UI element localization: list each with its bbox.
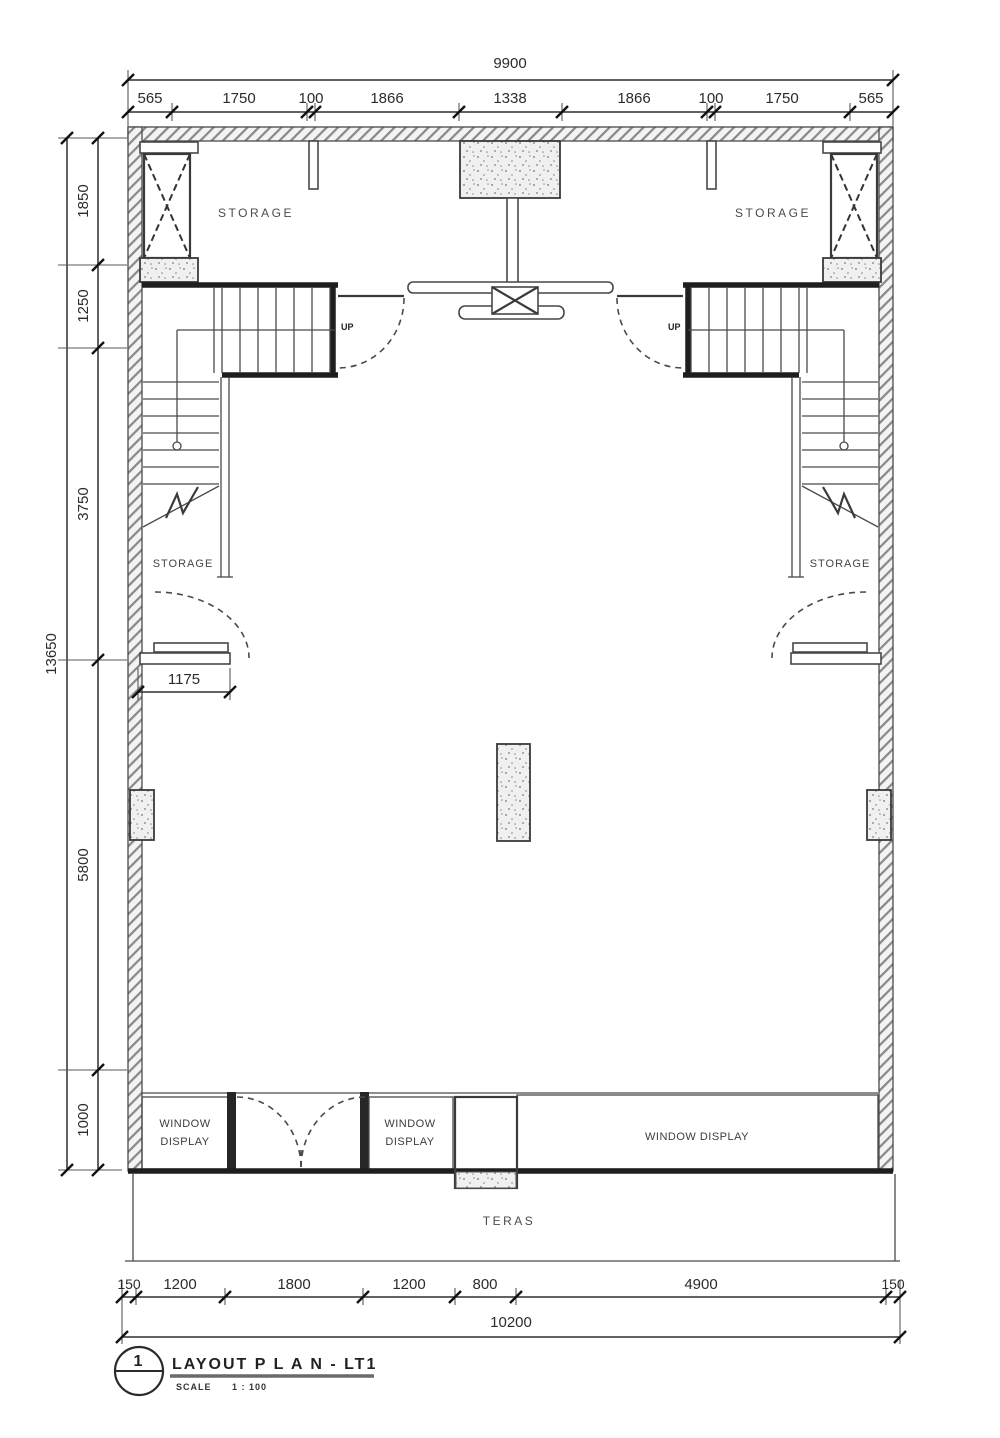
dim-top-seg-2: 100 (298, 90, 323, 107)
window-display-1-line2: DISPLAY (160, 1136, 209, 1148)
break-symbol (166, 487, 198, 518)
teras-label: TERAS (483, 1214, 536, 1228)
storage-label-mid-right: STORAGE (810, 558, 871, 570)
dim-top-seg-7: 1750 (765, 90, 798, 107)
entry-door-swing-left (237, 1097, 301, 1168)
center-column (497, 744, 530, 841)
dim-top-seg-0: 565 (137, 90, 162, 107)
dim-bottom-seg-5: 4900 (684, 1276, 717, 1293)
right-wall (879, 127, 893, 1171)
mid-columns (130, 744, 891, 841)
dim-left-seg-3: 5800 (75, 848, 92, 881)
understair-doors (140, 592, 881, 664)
wall-pier-right (867, 790, 891, 840)
dim-top-seg-4: 1338 (493, 90, 526, 107)
door-swing-right (617, 298, 683, 368)
scale-label: SCALE (176, 1382, 212, 1392)
dim-interior-width: 1175 (168, 671, 200, 688)
wall-pier-left (130, 790, 154, 840)
counter-right (791, 653, 881, 664)
dimension-interior: 1175 (132, 668, 236, 700)
center-wall-stem (507, 198, 518, 283)
dim-top-seg-8: 565 (858, 90, 883, 107)
window-display-2-line1: WINDOW (384, 1118, 435, 1130)
window-display-1-line1: WINDOW (159, 1118, 210, 1130)
break-symbol (823, 487, 855, 518)
dim-bottom-seg-2: 1800 (277, 1276, 310, 1293)
dim-left-seg-0: 1850 (75, 184, 92, 217)
shaft-cap (823, 142, 881, 153)
storage-label-mid-left: STORAGE (153, 558, 214, 570)
shopfront (128, 1092, 893, 1188)
window-display-2-line2: DISPLAY (385, 1136, 434, 1148)
window-display-3-label: WINDOW DISPLAY (645, 1131, 749, 1143)
dim-bottom-seg-3: 1200 (392, 1276, 425, 1293)
dim-left-seg-2: 3750 (75, 487, 92, 520)
shaft-cap (140, 142, 198, 153)
dim-top-seg-1: 1750 (222, 90, 255, 107)
dimensions-top: 9900 565 1750 100 1866 1338 1866 100 175… (122, 55, 899, 126)
dim-bottom-seg-6: 150 (881, 1276, 905, 1292)
dimensions-left: 1850 1250 3750 5800 1000 13650 (43, 132, 127, 1176)
scale-value: 1 : 100 (232, 1382, 267, 1392)
door-swing-left (338, 298, 404, 368)
dimensions-bottom: 150 1200 1800 1200 800 4900 150 10200 (116, 1276, 906, 1344)
dim-top-seg-3: 1866 (370, 90, 403, 107)
dim-bottom-seg-4: 800 (472, 1276, 497, 1293)
door-jamb (227, 1092, 236, 1171)
up-label-right: UP (668, 322, 681, 332)
dim-bottom-seg-0: 150 (117, 1276, 141, 1292)
dim-top-total: 9900 (493, 55, 526, 72)
storage-label-top-left: STORAGE (218, 206, 294, 220)
detail-number: 1 (134, 1353, 145, 1370)
rail-end (840, 442, 848, 450)
dim-bottom-seg-1: 1200 (163, 1276, 196, 1293)
shaft-base (140, 258, 198, 282)
dim-top-seg-6: 100 (698, 90, 723, 107)
dim-top-seg-5: 1866 (617, 90, 650, 107)
center-concrete-pier (460, 141, 560, 198)
title-block: 1 LAYOUT P L A N - LT1 SCALE 1 : 100 (114, 1347, 377, 1395)
dim-left-total: 13650 (43, 633, 60, 675)
stair-right (688, 288, 878, 577)
storage-label-top-right: STORAGE (735, 206, 811, 220)
rail-end (173, 442, 181, 450)
wall-stub-right (707, 141, 716, 189)
window-display-box-1 (142, 1097, 229, 1169)
shaft-top-left (140, 142, 198, 282)
wall-stub-left (309, 141, 318, 189)
counter-left (154, 643, 228, 652)
door-jamb (360, 1092, 369, 1171)
dim-bottom-total: 10200 (490, 1314, 532, 1331)
drawing-title: LAYOUT P L A N - LT1 (172, 1356, 377, 1373)
floor-plan-drawing: 9900 565 1750 100 1866 1338 1866 100 175… (0, 0, 1000, 1438)
top-structures (309, 141, 716, 319)
dim-left-seg-4: 1000 (75, 1103, 92, 1136)
dim-left-seg-1: 1250 (75, 289, 92, 322)
counter-left (140, 653, 230, 664)
shaft-top-right (823, 142, 881, 282)
shaft-base (823, 258, 881, 282)
window-display-box-2 (369, 1097, 453, 1169)
entry-pier-base (456, 1172, 516, 1188)
left-wall (128, 127, 142, 1171)
counter-right (793, 643, 867, 652)
up-label-left: UP (341, 322, 354, 332)
entry-door-swing-right (301, 1097, 365, 1168)
top-wall (128, 127, 893, 141)
stair-left (143, 288, 336, 577)
